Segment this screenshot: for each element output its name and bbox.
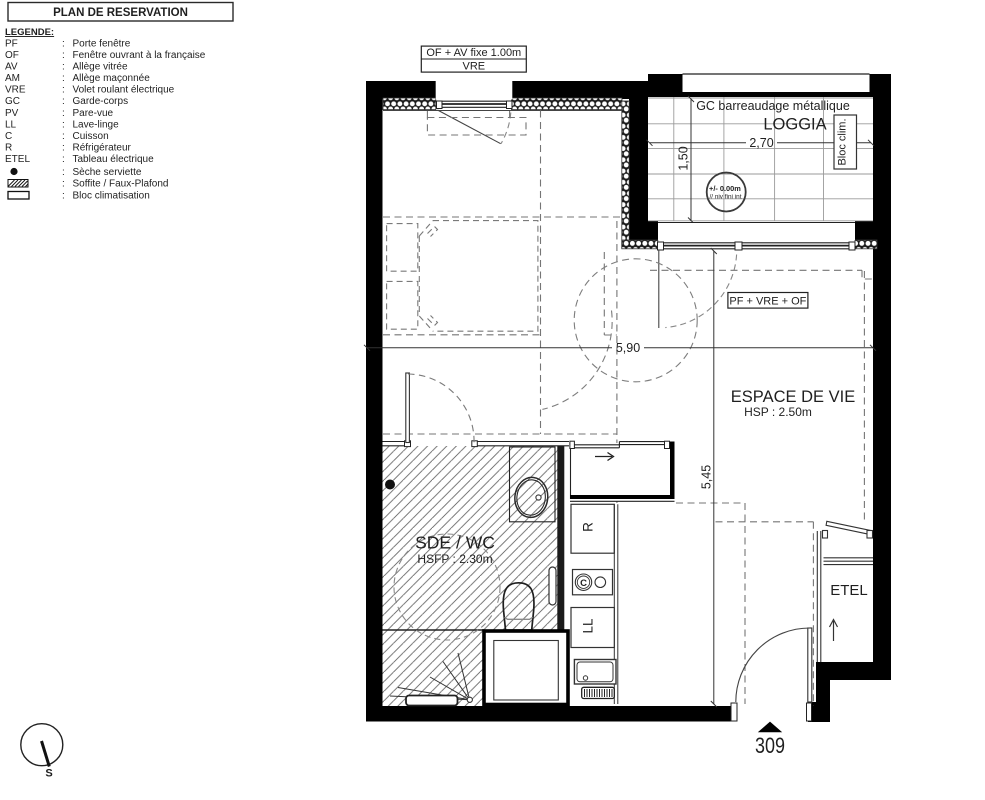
svg-text::: :: [62, 154, 65, 165]
svg-text::: :: [62, 167, 65, 178]
svg-text:309: 309: [755, 733, 785, 758]
svg-text:// niv fini int: // niv fini int: [710, 193, 742, 200]
svg-text:Volet roulant électrique: Volet roulant électrique: [73, 85, 175, 96]
svg-text::: :: [62, 131, 65, 142]
svg-text:Bloc climatisation: Bloc climatisation: [73, 191, 150, 202]
svg-text:Allège maçonnée: Allège maçonnée: [73, 73, 151, 84]
svg-text:ETEL: ETEL: [830, 582, 868, 599]
svg-text:HSFP : 2.30m: HSFP : 2.30m: [417, 552, 492, 566]
svg-text:VRE: VRE: [5, 85, 26, 96]
svg-text::: :: [62, 143, 65, 154]
svg-text:ESPACE DE VIE: ESPACE DE VIE: [731, 388, 855, 406]
svg-text:Lave-linge: Lave-linge: [73, 120, 120, 131]
svg-text::: :: [62, 62, 65, 73]
svg-text:HSP : 2.50m: HSP : 2.50m: [744, 405, 812, 419]
svg-text:C: C: [5, 131, 12, 142]
svg-text:PV: PV: [5, 108, 19, 119]
svg-text:Pare-vue: Pare-vue: [73, 108, 114, 119]
svg-text:LL: LL: [5, 120, 17, 131]
svg-text:1,50: 1,50: [677, 146, 691, 170]
svg-text:Porte fenêtre: Porte fenêtre: [73, 39, 131, 50]
svg-text:AV: AV: [5, 62, 18, 73]
svg-text::: :: [62, 85, 65, 96]
svg-text::: :: [62, 39, 65, 50]
svg-text:+/- 0.00m: +/- 0.00m: [709, 184, 741, 193]
svg-text:Garde-corps: Garde-corps: [73, 96, 129, 107]
svg-text:OF + AV fixe 1.00m: OF + AV fixe 1.00m: [426, 47, 521, 59]
svg-text:OF: OF: [5, 50, 19, 61]
svg-text:LEGENDE:: LEGENDE:: [5, 27, 54, 38]
svg-text:R: R: [5, 143, 12, 154]
svg-text:PF: PF: [5, 39, 18, 50]
svg-text:PLAN DE RESERVATION: PLAN DE RESERVATION: [53, 7, 188, 19]
svg-text:Sèche serviette: Sèche serviette: [73, 167, 142, 178]
svg-text:5,90: 5,90: [616, 341, 640, 355]
svg-text:GC barreaudage métallique: GC barreaudage métallique: [696, 99, 850, 113]
svg-text:2,70: 2,70: [749, 136, 773, 150]
svg-text:Soffite / Faux-Plafond: Soffite / Faux-Plafond: [73, 179, 169, 190]
svg-text::: :: [62, 73, 65, 84]
svg-text:GC: GC: [5, 96, 20, 107]
svg-text:LOGGIA: LOGGIA: [763, 116, 826, 134]
svg-text::: :: [62, 120, 65, 131]
svg-text::: :: [62, 191, 65, 202]
svg-text:5,45: 5,45: [700, 465, 714, 489]
svg-text::: :: [62, 108, 65, 119]
svg-text::: :: [62, 50, 65, 61]
svg-text:R: R: [581, 522, 596, 532]
svg-text::: :: [62, 96, 65, 107]
svg-text:C: C: [580, 578, 587, 589]
svg-text:Bloc clim.: Bloc clim.: [837, 118, 849, 165]
svg-text:VRE: VRE: [462, 61, 485, 73]
svg-text:Allège vitrée: Allège vitrée: [73, 62, 128, 73]
svg-text::: :: [62, 179, 65, 190]
svg-text:S: S: [45, 768, 52, 780]
svg-text:PF + VRE + OF: PF + VRE + OF: [729, 296, 806, 308]
svg-text:Tableau électrique: Tableau électrique: [73, 154, 155, 165]
svg-text:SDE / WC: SDE / WC: [415, 533, 495, 553]
svg-text:ETEL: ETEL: [5, 154, 30, 165]
svg-text:LL: LL: [581, 618, 596, 634]
svg-text:AM: AM: [5, 73, 20, 84]
svg-text:Réfrigérateur: Réfrigérateur: [73, 143, 132, 154]
svg-text:Fenêtre ouvrant à la française: Fenêtre ouvrant à la française: [73, 50, 206, 61]
svg-text:Cuisson: Cuisson: [73, 131, 109, 142]
